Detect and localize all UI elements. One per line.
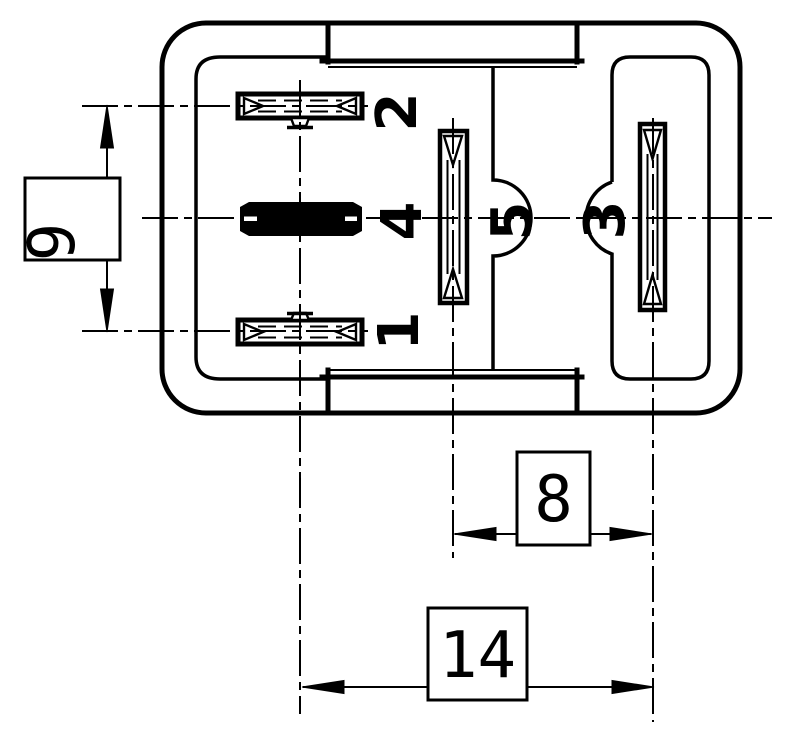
dimension-8: 8 xyxy=(454,452,652,545)
pin-4-label: 4 xyxy=(370,202,435,241)
relay-footprint-diagram: 9 8 14 2 1 4 5 3 xyxy=(0,0,800,744)
pin-4-terminal xyxy=(240,202,362,236)
dim-9-value: 9 xyxy=(16,223,90,262)
arrow-up-icon xyxy=(101,105,114,148)
arrow-right-icon xyxy=(610,528,652,541)
dimension-9: 9 xyxy=(16,105,120,332)
arrow-left-icon xyxy=(302,681,344,694)
arrow-down-icon xyxy=(101,289,114,332)
dim-8-value: 8 xyxy=(534,463,573,537)
drawing-canvas: 9 8 14 2 1 4 5 3 xyxy=(0,0,800,744)
pin-5-label: 5 xyxy=(480,202,545,241)
dimension-14: 14 xyxy=(302,608,654,700)
top-notch xyxy=(322,25,582,67)
pin-1-label: 1 xyxy=(367,312,432,351)
pin-labels: 2 1 4 5 3 xyxy=(365,93,638,351)
pin-2-label: 2 xyxy=(365,93,430,132)
dim-14-value: 14 xyxy=(439,619,516,693)
pin-3-label: 3 xyxy=(573,201,638,240)
arrow-left-icon xyxy=(454,528,496,541)
arrow-right-icon xyxy=(612,681,654,694)
